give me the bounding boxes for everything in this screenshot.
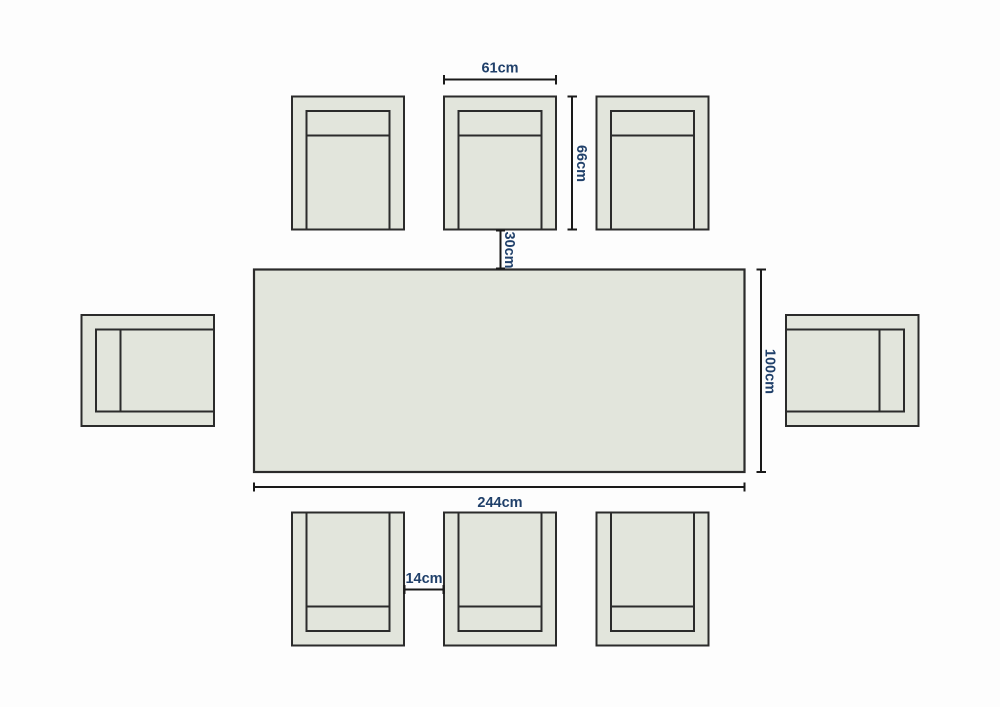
svg-text:66cm: 66cm (573, 145, 589, 182)
svg-text:244cm: 244cm (477, 495, 522, 511)
svg-text:61cm: 61cm (481, 61, 518, 77)
svg-text:100cm: 100cm (762, 349, 778, 394)
svg-text:14cm: 14cm (405, 571, 442, 587)
svg-text:30cm: 30cm (501, 231, 517, 268)
